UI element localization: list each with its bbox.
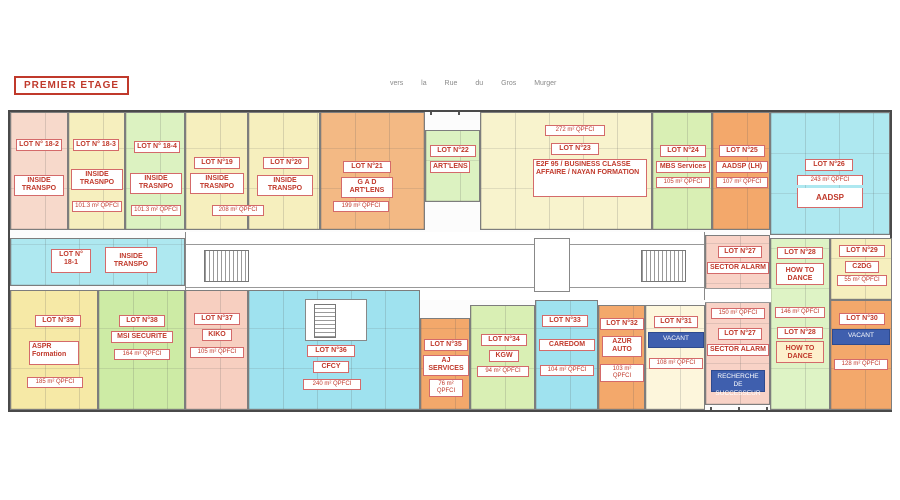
lot-number-label: LOT N° 18-2 [16,139,62,151]
tenant-name-label: INSIDE TRANSPO [14,175,64,196]
lot-35-room: LOT N°35 AJ SERVICES 76 m² QPFCI [420,318,470,410]
lot-36-room: LOT N°36 CFCY 240 m² QPFCI [248,290,420,410]
lot-18-1-room: LOT N° 18-1 INSIDE TRANSPO [10,238,185,286]
page-title: PREMIER ETAGE [14,76,129,95]
lot-area-label: 185 m² QPFCI [27,377,83,388]
tenant-name-label: HOW TO DANCE [776,263,824,285]
lot-area-label: 240 m² QPFCI [303,379,361,390]
lot-22-room: LOT N°22 ART'LENS [425,130,480,202]
utility-core [534,238,570,292]
lot-area-label: 101.3 m² QPFCI [72,201,122,212]
lot-number-label: LOT N°33 [542,315,588,327]
lot-area-label: 128 m² QPFCI [834,359,888,370]
lot-number-label: LOT N° 18-3 [73,139,119,151]
lot-number-label: LOT N°37 [194,313,240,325]
lot-number-label: LOT N°22 [430,145,476,157]
lot-area-label: 55 m² QPFCI [837,275,887,286]
tenant-name-label: AADSP (LH) [716,161,768,173]
lot-number-label: LOT N°23 [551,143,599,155]
lot-area-label: 272 m² QPFCI [545,125,605,136]
tenant-name-label: ART'LENS [430,161,470,173]
lot-area-label: 164 m² QPFCI [114,349,170,360]
tenant-name-label: INSIDE TRANSPO [105,247,157,273]
lot-area-label: 94 m² QPFCI [477,366,529,377]
lot-number-label: LOT N°24 [660,145,706,157]
lot-number-label: LOT N°35 [424,339,468,351]
lot-number-label: LOT N°39 [35,315,81,327]
stairs-icon [314,304,336,338]
lot-number-label: LOT N°19 [194,157,240,169]
stairs-west-icon [204,250,249,282]
tenant-name-label: SECTOR ALARM [707,344,769,356]
lot-34-room: LOT N°34 KGW 94 m² QPFCI [470,305,535,410]
tenant-name-label: INSIDE TRASNPO [71,169,123,190]
lot-31-room: LOT N°31 VACANT 108 m² QPFCI [645,305,705,410]
lot-number-label: LOT N° 18-4 [134,141,180,153]
tenant-name-label: ASPR Formation [29,341,79,365]
tenant-name-label: AJ SERVICES [423,355,469,376]
tenant-name-label: INSIDE TRASNPO [190,173,244,194]
lot-area-label: 150 m² QPFCI [711,308,765,319]
lot-39-room: LOT N°39 ASPR Formation 185 m² QPFCI [10,290,98,410]
tenant-name-label: CAREDOM [539,339,595,351]
vacant-badge: VACANT [832,329,890,345]
lot-30-room: LOT N°30 VACANT 128 m² QPFCI [830,300,892,410]
lot-area-label: 108 m² QPFCI [649,358,703,369]
tenant-name-label: INSIDE TRASNPO [130,173,182,194]
lot-33-room: LOT N°33 CAREDOM 104 m² QPFCI [535,300,598,410]
lot-18-4-room: LOT N° 18-4 INSIDE TRASNPO 101.3 m² QPFC… [125,112,185,230]
successor-search-badge: RECHERCHE DE SUCCESSEUR [711,370,765,392]
lot-number-label: LOT N°38 [119,315,165,327]
lot-number-label: LOT N°29 [839,245,885,257]
lot-area-label: 105 m² QPFCI [190,347,244,358]
tenant-name-label: KIKO [202,329,232,341]
vacant-badge: VACANT [648,332,704,348]
corridor-walls [186,244,704,288]
lot-number-label: LOT N°21 [343,161,391,173]
lot-18-2-room: LOT N° 18-2 INSIDE TRANSPO [10,112,68,230]
lot-area-label: 146 m² QPFCI [775,307,825,318]
floor-plan-canvas: PREMIER ETAGE vers la Rue du Gros Murger… [0,0,900,500]
lot-38-room: LOT N°38 MSI SECURITE 164 m² QPFCI [98,290,185,410]
lot-number-label: LOT N°28 [777,327,823,339]
lot-area-label: 104 m² QPFCI [540,365,594,376]
lot-number-label: LOT N°26 [805,159,853,171]
lot-18-3-room: LOT N° 18-3 INSIDE TRASNPO 101.3 m² QPFC… [68,112,125,230]
lot-24-room: LOT N°24 MBS Services 105 m² QPFCI [652,112,712,230]
tenant-name-label: SECTOR ALARM [707,262,769,274]
lot-26-room: LOT N°26 243 m² QPFCI AADSP [770,112,890,235]
lot-number-label: LOT N°28 [777,247,823,259]
lot-23-room: 272 m² QPFCI LOT N°23 E2F 95 / BUSINESS … [480,112,652,230]
tenant-name-label: KGW [489,350,519,362]
stairwell-block [305,299,367,341]
tenant-name-label: AADSP [797,188,863,208]
tenant-name-label: MSI SECURITE [111,331,173,343]
lot-area-label: 199 m² QPFCI [333,201,389,212]
lot-29-room: LOT N°29 C2DG 55 m² QPFCI [830,238,892,300]
tenant-name-label: AZUR AUTO [602,336,642,357]
lot-area-label: 103 m² QPFCI [600,364,644,382]
tenant-name-label: E2F 95 / BUSINESS CLASSE AFFAIRE / NAYAN… [533,159,647,197]
lot-25-room: LOT N°25 AADSP (LH) 107 m² QPFCI [712,112,770,230]
lot-number-label: LOT N° 18-1 [51,249,91,273]
tenant-name-label: C2DG [845,261,879,273]
lot-21-room: LOT N°21 G A D ART'LENS 199 m² QPFCI [320,112,425,230]
lot-number-label: LOT N°27 [718,246,762,258]
lot-area-label: 105 m² QPFCI [656,177,710,188]
tenant-name-label: G A D ART'LENS [341,177,393,198]
tenant-name-label: MBS Services [656,161,710,173]
tenant-name-label: HOW TO DANCE [776,341,824,363]
lot-32-room: LOT N°32 AZUR AUTO 103 m² QPFCI [598,305,645,410]
lot-number-label: LOT N°27 [718,328,762,340]
tenant-name-label: INSIDE TRANSPO [257,175,313,196]
tenant-name-label: CFCY [313,361,349,373]
lot-19-room: LOT N°19 INSIDE TRASNPO 208 m² QPFCI [185,112,248,230]
lot-area-label: 208 m² QPFCI [212,205,264,216]
lot-number-label: LOT N°25 [719,145,765,157]
lot-number-label: LOT N°36 [307,345,355,357]
lot-28-room: LOT N°28 HOW TO DANCE 146 m² QPFCI LOT N… [770,238,830,410]
lot-number-label: LOT N°32 [600,318,644,330]
lot-area-label: 243 m² QPFCI [797,175,863,185]
lot-27-room: LOT N°27 SECTOR ALARM 150 m² QPFCI LOT N… [705,235,770,405]
lot-area-label: 101.3 m² QPFCI [131,205,181,216]
lot-number-label: LOT N°34 [481,334,527,346]
street-label: vers la Rue du Gros Murger [390,80,556,87]
stairs-east-icon [641,250,686,282]
lot-37-room: LOT N°37 KIKO 105 m² QPFCI [185,290,248,410]
lot-area-label: 76 m² QPFCI [429,379,463,397]
corridor-crossing [705,288,771,303]
lot-number-label: LOT N°30 [839,313,885,325]
lot-area-label: 107 m² QPFCI [716,177,768,188]
lot-number-label: LOT N°20 [263,157,309,169]
lot-number-label: LOT N°31 [654,316,698,328]
